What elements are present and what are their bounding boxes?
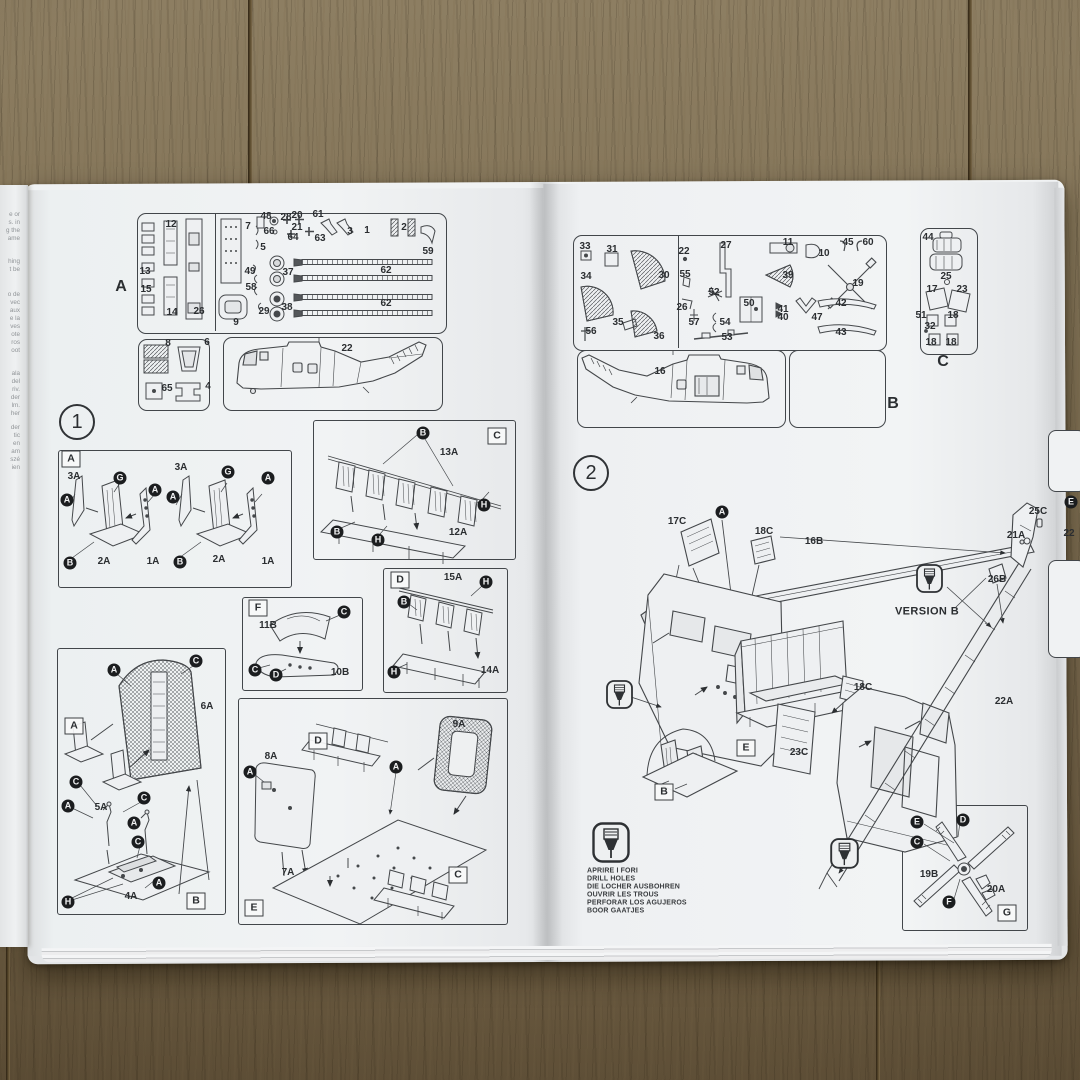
section-c-illustration: [313, 420, 514, 558]
wood-plank-seam: [968, 0, 972, 194]
helicopter-16-illustration: [577, 350, 784, 426]
sprue-a-left-parts-illustration: [137, 213, 215, 331]
stacked-page-edges: [42, 944, 1052, 962]
wood-plank-seam: [876, 950, 880, 1080]
photo-of-instruction-booklet: e ors. ing theamehingt beo devecauxe lav…: [0, 0, 1080, 1080]
label-e: E: [1065, 496, 1078, 509]
sprue-c-parts-illustration: [920, 228, 976, 353]
folded-page-text-strip: [0, 185, 28, 947]
section-d-illustration: [383, 568, 506, 691]
sprue-b-left-parts-illustration: [573, 235, 678, 348]
drill-icon: [830, 838, 859, 871]
sprue-a-small-parts-illustration: [138, 339, 208, 409]
booklet-spine: [529, 182, 562, 962]
section-g-tail-rotor-illustration: [902, 805, 1026, 929]
sprue-b-right-parts-illustration: [678, 235, 885, 348]
drill-icon: [916, 564, 943, 595]
section-e-illustration: [238, 698, 506, 923]
empty-box: [789, 350, 886, 428]
helicopter-22-illustration: [223, 337, 441, 409]
wood-plank-seam: [6, 946, 10, 1080]
wood-plank-seam: [248, 0, 252, 190]
drill-icon: [606, 680, 633, 711]
sprue-a-right-parts-illustration: [215, 213, 443, 331]
drill-icon: [592, 822, 630, 866]
section-a-illustration: [58, 450, 290, 586]
section-f-illustration: [242, 597, 361, 689]
section-b-illustration: [57, 648, 224, 913]
